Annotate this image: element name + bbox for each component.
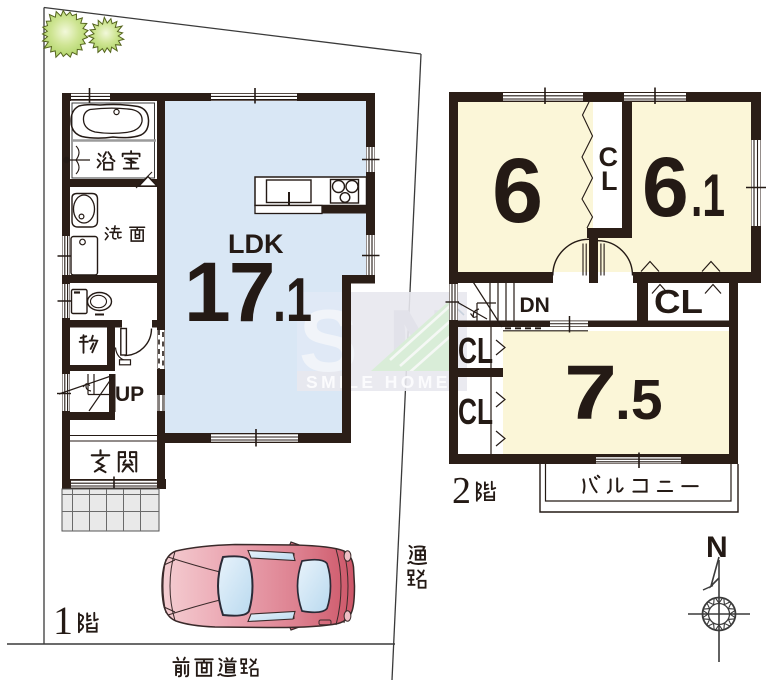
svg-text:UP: UP <box>115 383 144 406</box>
svg-text:2: 2 <box>452 470 471 512</box>
svg-text:DN: DN <box>520 294 550 317</box>
svg-text:.1: .1 <box>691 162 725 229</box>
svg-text:N: N <box>706 531 728 564</box>
svg-text:CL: CL <box>654 283 703 320</box>
svg-text:17: 17 <box>184 245 273 339</box>
svg-text:.5: .5 <box>615 368 663 432</box>
svg-text:L: L <box>601 166 618 196</box>
svg-text:SMILE HOME: SMILE HOME <box>306 372 451 392</box>
svg-text:.1: .1 <box>273 266 312 335</box>
svg-text:6: 6 <box>642 140 689 234</box>
svg-text:CL: CL <box>458 391 493 432</box>
svg-text:CL: CL <box>458 330 493 371</box>
svg-text:7: 7 <box>564 350 617 436</box>
svg-text:1: 1 <box>53 598 73 643</box>
svg-text:6: 6 <box>492 140 543 242</box>
